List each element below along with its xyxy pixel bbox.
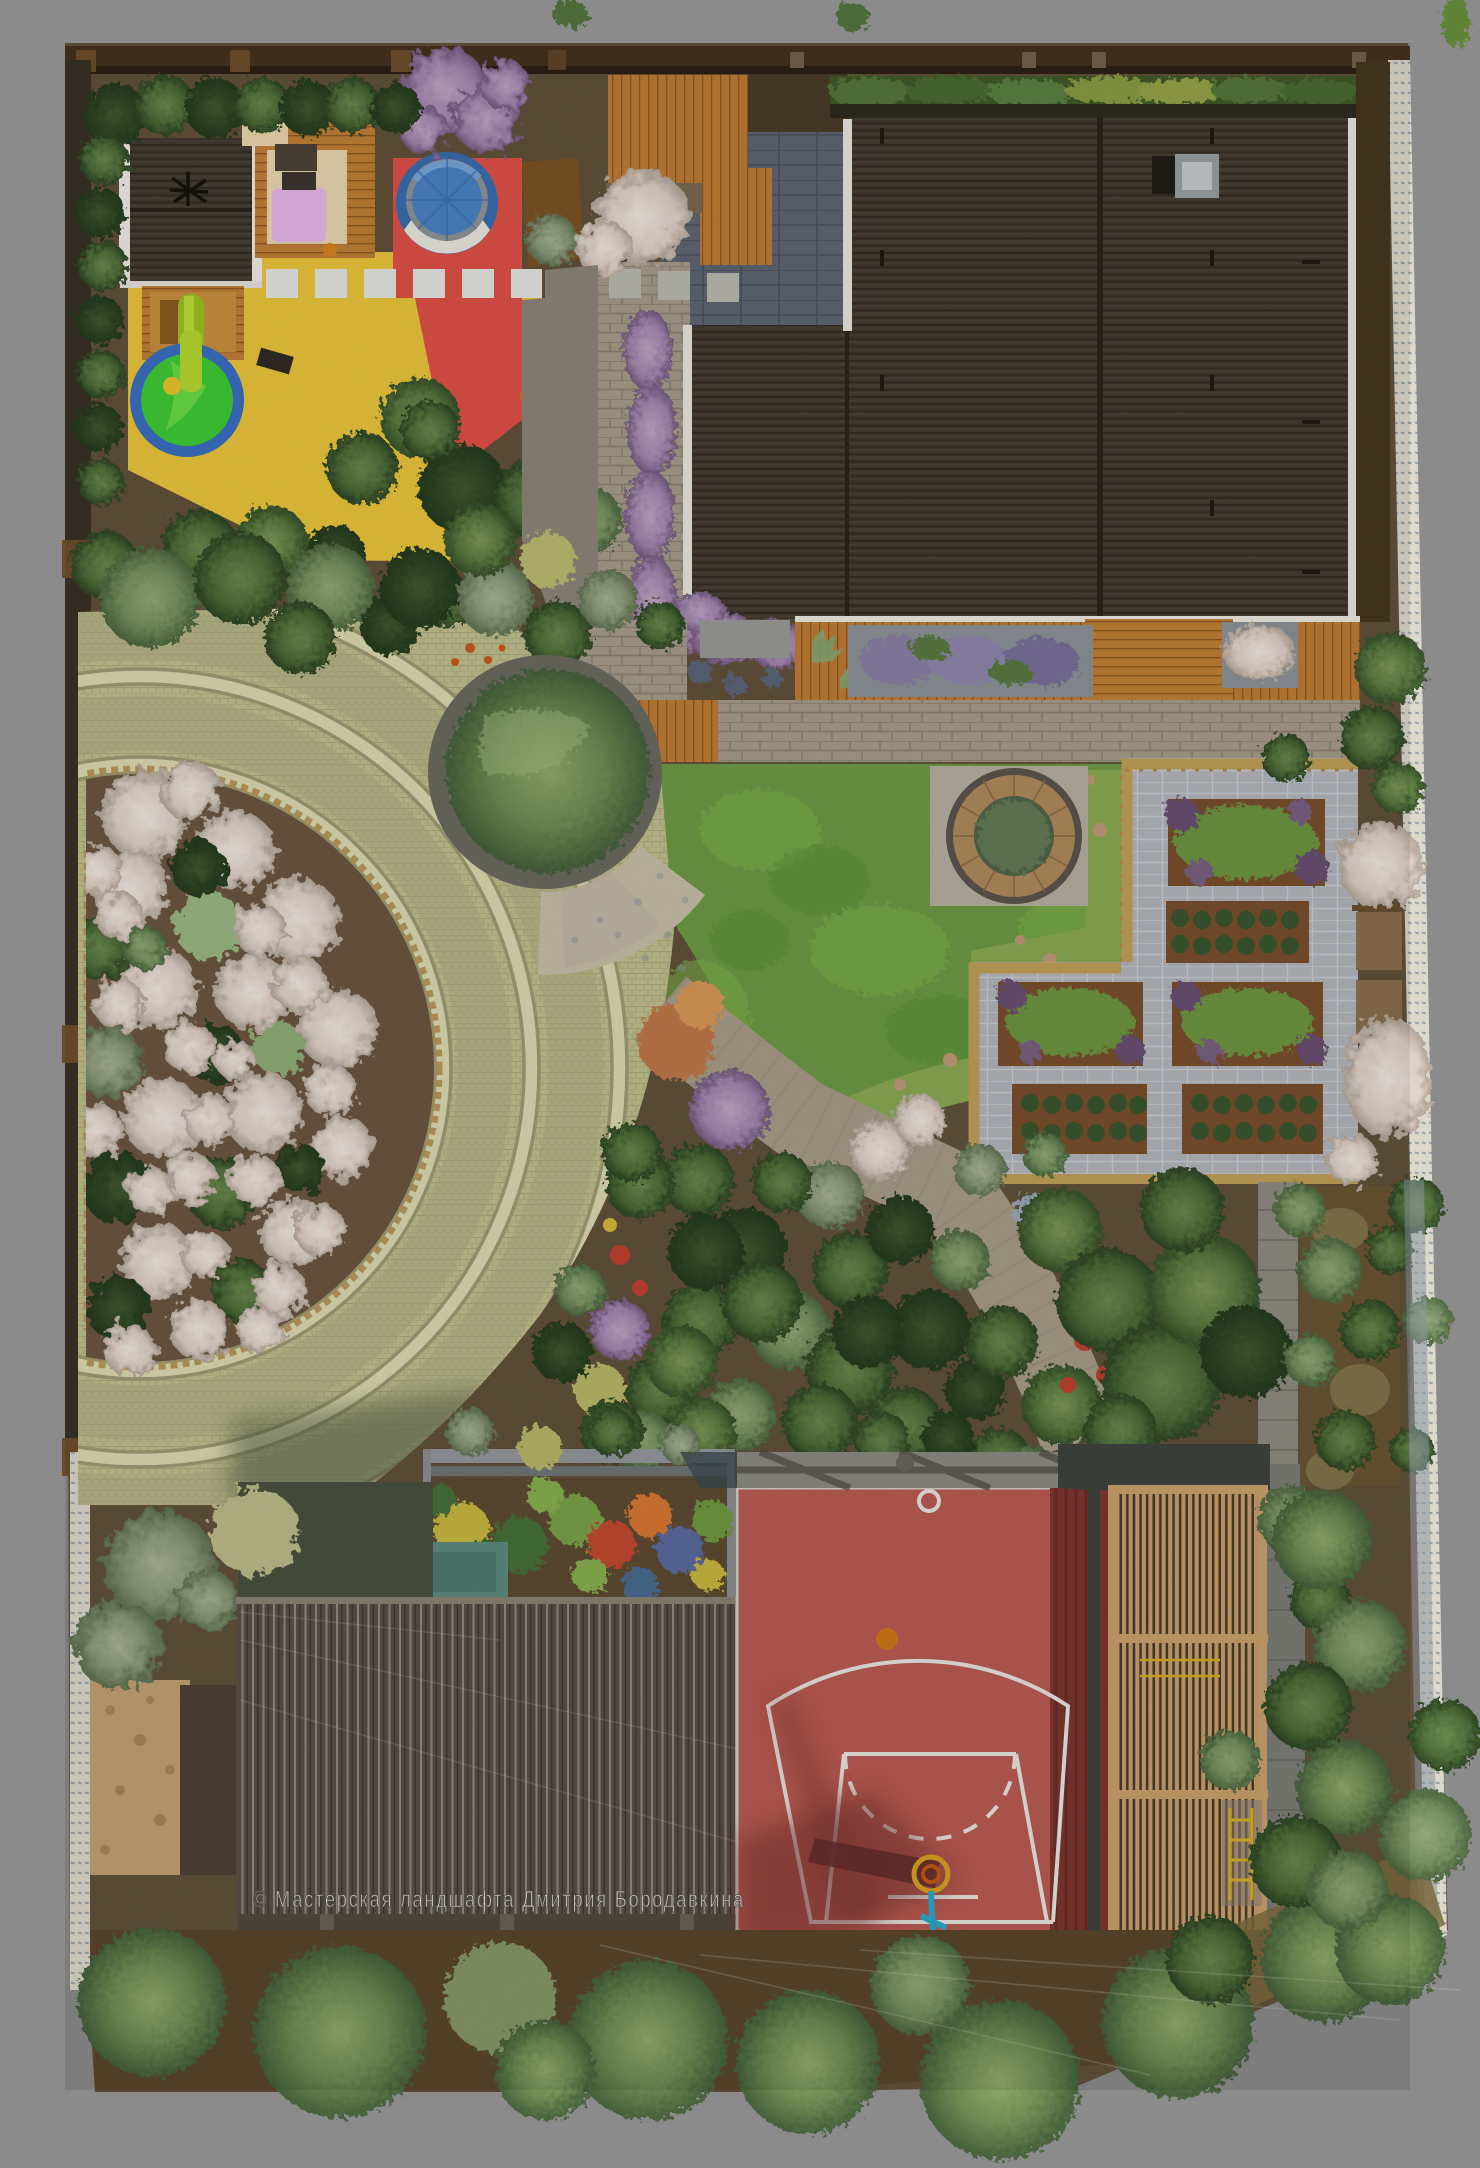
svg-text:© Мастерская ландшафта Дмитрия: © Мастерская ландшафта Дмитрия Бородавки… [253, 1886, 745, 1912]
